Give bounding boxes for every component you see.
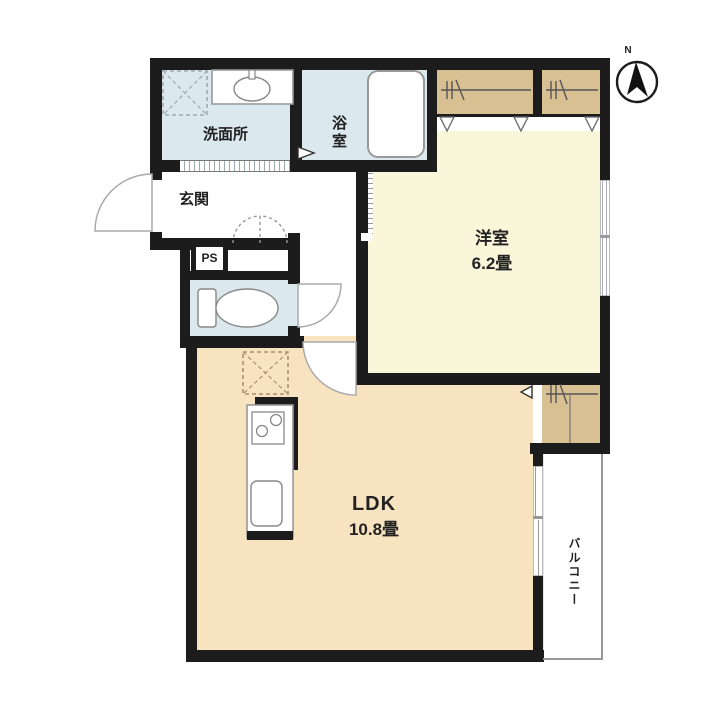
wall	[186, 336, 197, 662]
western-room-sliding-door	[368, 172, 373, 238]
floor-plan: PS	[0, 0, 720, 714]
wall	[288, 233, 300, 284]
closet-b-floor	[542, 68, 600, 115]
wall	[356, 160, 368, 385]
wall	[186, 650, 544, 662]
wall	[290, 58, 302, 172]
wall	[600, 296, 610, 454]
ldk-size: 10.8畳	[314, 521, 434, 540]
window-mullion	[600, 235, 610, 238]
glass-door-pane-line	[538, 520, 539, 576]
pipe-space-label: PS	[201, 252, 217, 265]
wall	[533, 58, 542, 117]
washroom-sliding-door	[180, 160, 290, 172]
wall	[150, 160, 180, 172]
closet-front-strip	[437, 117, 600, 131]
bathroom-label: 浴室	[320, 102, 346, 164]
window-pane-line	[606, 180, 607, 296]
pipe-space-box: PS	[191, 242, 228, 275]
entrance-label: 玄関	[164, 192, 224, 209]
glass-door-rail	[533, 516, 543, 519]
sliding-door-pocket	[361, 233, 372, 241]
washroom-label: 洗面所	[183, 127, 268, 144]
wall	[180, 238, 190, 348]
wall	[183, 336, 304, 348]
closet-c-floor	[542, 380, 600, 445]
balcony-railing	[601, 454, 603, 660]
wall	[289, 397, 298, 470]
closet-a-floor	[437, 68, 533, 115]
western-room-label: 洋室	[432, 230, 552, 249]
compass-icon	[617, 62, 657, 102]
wall	[533, 453, 543, 467]
ldk-label: LDK	[314, 493, 434, 515]
wall	[288, 326, 300, 338]
wall	[437, 114, 600, 117]
wall	[533, 576, 543, 651]
entrance-door-swing	[95, 174, 152, 231]
closet-c-doorway	[533, 385, 542, 443]
balcony-railing	[543, 658, 603, 660]
compass-north-label: N	[620, 45, 636, 56]
western-room-size: 6.2畳	[432, 255, 552, 274]
glass-door-pane-line	[535, 466, 536, 518]
balcony-label: バルコニー	[558, 522, 580, 622]
wall	[600, 58, 610, 180]
wall	[427, 58, 437, 172]
toilet-door-swing	[298, 284, 341, 327]
wall	[356, 373, 610, 385]
window-pane-line	[602, 180, 603, 296]
